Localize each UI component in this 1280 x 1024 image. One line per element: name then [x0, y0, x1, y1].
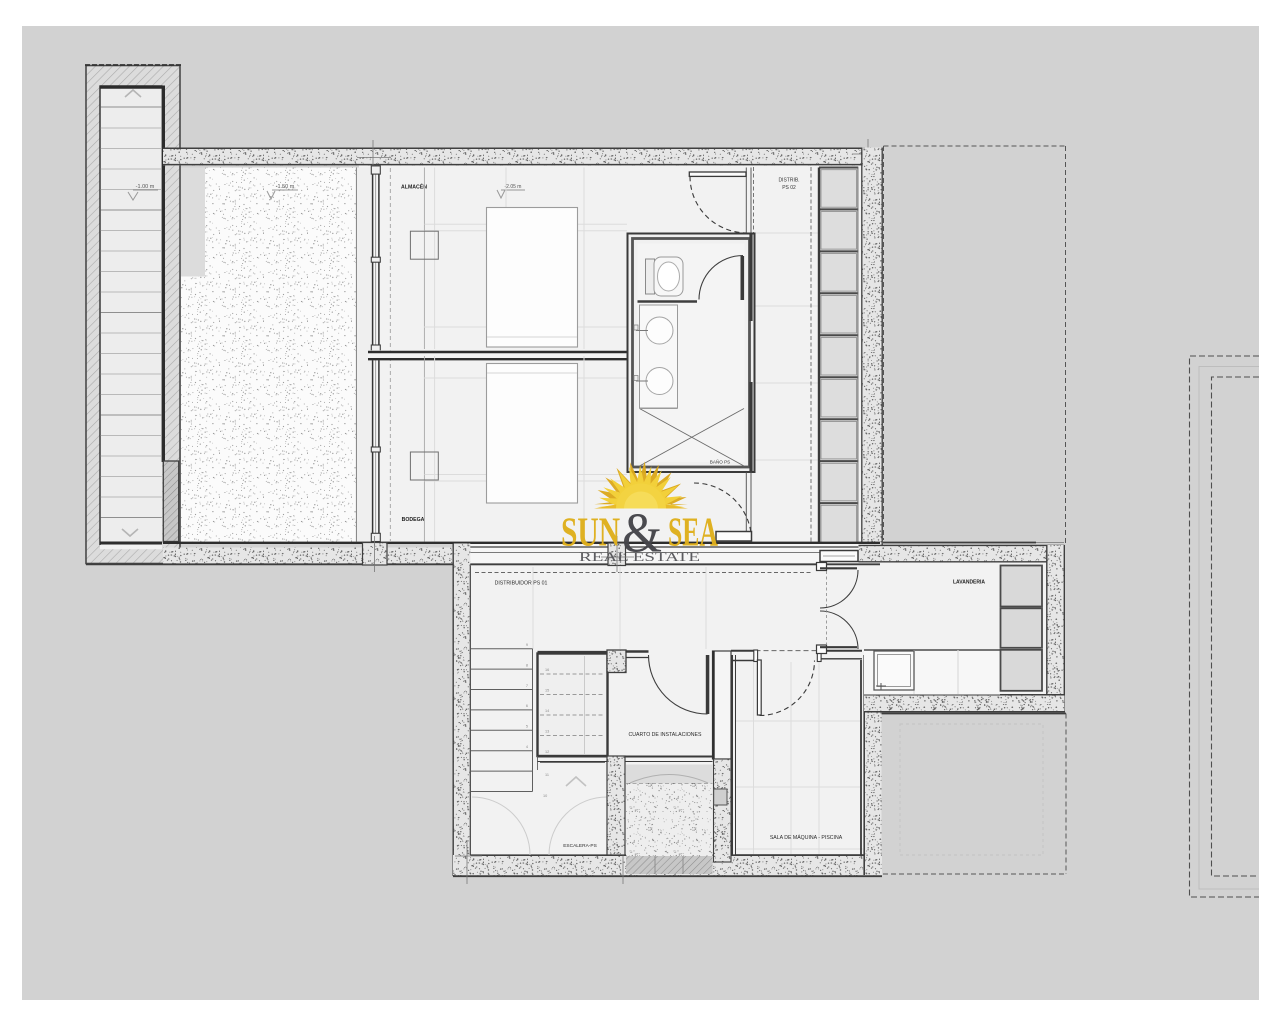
svg-text:7: 7 [526, 684, 528, 688]
svg-text:13: 13 [545, 730, 549, 734]
svg-text:5: 5 [526, 725, 528, 729]
svg-text:SEA: SEA [668, 509, 718, 555]
svg-text:CUARTO DE INSTALACIONES: CUARTO DE INSTALACIONES [629, 732, 702, 738]
svg-text:-2.05 m: -2.05 m [505, 184, 522, 190]
svg-text:14: 14 [545, 709, 549, 713]
svg-text:9: 9 [526, 643, 528, 647]
svg-text:11: 11 [545, 773, 549, 777]
svg-text:6: 6 [526, 704, 528, 708]
svg-text:15: 15 [545, 689, 549, 693]
svg-text:-1.50 m: -1.50 m [276, 184, 295, 190]
svg-text:16: 16 [545, 668, 549, 672]
svg-text:10: 10 [543, 794, 547, 798]
svg-text:12: 12 [545, 750, 549, 754]
svg-text:ESCALERA-PS: ESCALERA-PS [563, 843, 597, 849]
svg-text:DISTRIBUIDOR PS 01: DISTRIBUIDOR PS 01 [495, 581, 548, 587]
svg-text:8: 8 [526, 663, 528, 667]
svg-text:DISTRIB.: DISTRIB. [778, 178, 799, 184]
svg-text:PS 02: PS 02 [782, 185, 796, 191]
svg-text:LAVANDERIA: LAVANDERIA [953, 580, 985, 586]
svg-text:-1.00 m: -1.00 m [136, 184, 155, 190]
svg-text:REAL ESTATE: REAL ESTATE [579, 550, 701, 564]
svg-text:ALMACÉN: ALMACÉN [401, 182, 427, 190]
svg-text:BAÑO PS: BAÑO PS [710, 459, 730, 465]
svg-text:4: 4 [526, 745, 528, 749]
svg-text:SALA DE MÁQUINA - PISCINA: SALA DE MÁQUINA - PISCINA [770, 834, 843, 841]
svg-text:BODEGA: BODEGA [402, 517, 425, 523]
svg-text:SUN: SUN [561, 509, 620, 555]
